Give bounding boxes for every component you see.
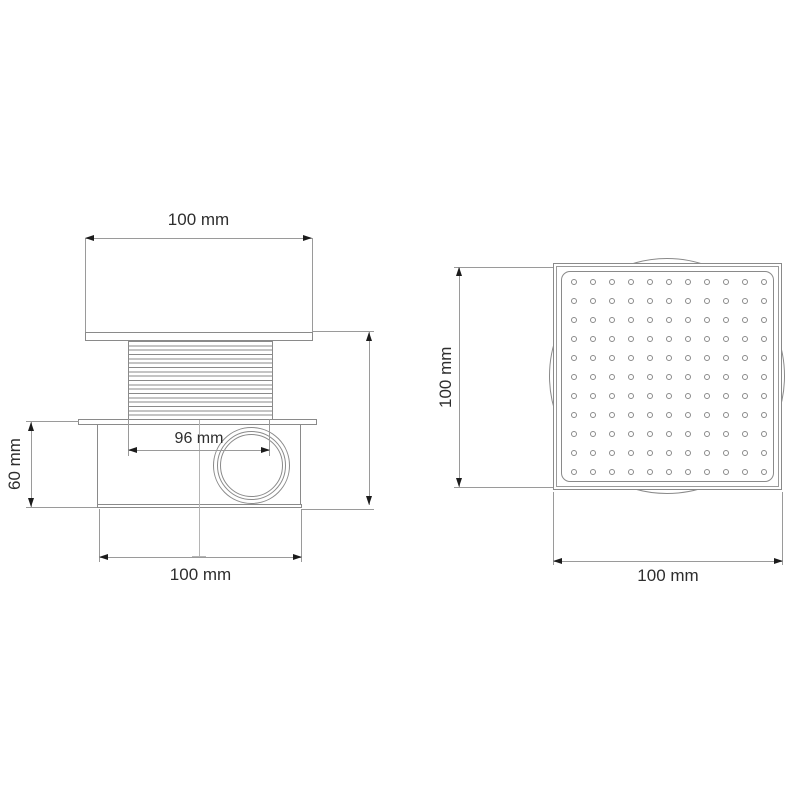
grate-hole — [628, 412, 634, 418]
grate-hole — [723, 279, 729, 285]
grate-hole — [609, 431, 615, 437]
grate-hole — [647, 336, 653, 342]
grate-hole — [647, 298, 653, 304]
grate-hole — [666, 431, 672, 437]
grate-hole — [628, 336, 634, 342]
grate-hole — [609, 412, 615, 418]
grate-hole — [723, 450, 729, 456]
grate-hole — [590, 298, 596, 304]
grate-hole — [723, 355, 729, 361]
grate-hole — [628, 450, 634, 456]
grate-hole — [723, 336, 729, 342]
grate-hole — [685, 317, 691, 323]
grate-hole — [609, 317, 615, 323]
grate-hole — [723, 298, 729, 304]
grate-hole — [666, 374, 672, 380]
grate-hole — [685, 279, 691, 285]
grate-hole — [704, 336, 710, 342]
dim-arrow-left-icon — [553, 558, 562, 564]
extension-line — [782, 492, 783, 565]
grate-hole — [571, 336, 577, 342]
grate-hole — [704, 279, 710, 285]
grate-hole — [742, 298, 748, 304]
grate-hole — [628, 393, 634, 399]
grate-hole — [647, 317, 653, 323]
grate-hole — [666, 298, 672, 304]
grate-hole — [723, 374, 729, 380]
grate-hole — [647, 469, 653, 475]
grate-hole — [571, 393, 577, 399]
dim-arrow-down-icon — [456, 478, 462, 487]
grate-hole — [571, 412, 577, 418]
grate-hole — [742, 450, 748, 456]
grate-hole — [761, 336, 767, 342]
grate-hole — [742, 279, 748, 285]
grate-hole — [742, 469, 748, 475]
grate-hole — [590, 469, 596, 475]
grate-hole — [761, 374, 767, 380]
grate-hole — [647, 412, 653, 418]
grate-hole — [590, 431, 596, 437]
grate-hole — [704, 374, 710, 380]
grate-hole — [685, 393, 691, 399]
grate-hole — [609, 355, 615, 361]
top-view-width-label: 100 mm — [553, 567, 783, 585]
grate-holes — [554, 264, 781, 489]
grate-hole — [590, 336, 596, 342]
grate-hole — [666, 336, 672, 342]
grate-hole — [761, 355, 767, 361]
dim-arrow-right-icon — [774, 558, 783, 564]
grate-hole — [685, 355, 691, 361]
grate-hole — [628, 279, 634, 285]
grate-hole — [609, 279, 615, 285]
extension-line — [454, 267, 553, 268]
grate-hole — [704, 450, 710, 456]
grate-hole — [571, 355, 577, 361]
grate-hole — [609, 374, 615, 380]
grate-hole — [723, 393, 729, 399]
grate-hole — [704, 431, 710, 437]
grate-hole — [647, 450, 653, 456]
grate-hole — [590, 393, 596, 399]
grate-hole — [628, 469, 634, 475]
grate-hole — [628, 317, 634, 323]
top-view-height-dim-line — [459, 267, 460, 487]
grate-hole — [666, 317, 672, 323]
grate-hole — [685, 469, 691, 475]
grate-hole — [666, 279, 672, 285]
grate-hole — [647, 374, 653, 380]
grate-hole — [628, 374, 634, 380]
grate-hole — [761, 469, 767, 475]
grate-hole — [685, 298, 691, 304]
grate-hole — [571, 279, 577, 285]
grate-hole — [666, 469, 672, 475]
grate-hole — [761, 317, 767, 323]
grate-hole — [685, 374, 691, 380]
grate-hole — [571, 317, 577, 323]
technical-drawing-canvas: 100 mm 96 mm — [0, 0, 800, 800]
grate-hole — [761, 279, 767, 285]
grate-hole — [761, 412, 767, 418]
grate-hole — [685, 431, 691, 437]
top-view-height-label: 100 mm — [436, 267, 456, 487]
grate-outer-frame — [553, 263, 782, 490]
grate-hole — [647, 393, 653, 399]
grate-hole — [647, 279, 653, 285]
grate-hole — [647, 431, 653, 437]
grate-hole — [590, 450, 596, 456]
grate-hole — [590, 279, 596, 285]
grate-hole — [609, 298, 615, 304]
grate-hole — [666, 412, 672, 418]
grate-hole — [628, 431, 634, 437]
grate-hole — [685, 450, 691, 456]
grate-hole — [666, 450, 672, 456]
grate-hole — [666, 393, 672, 399]
grate-hole — [609, 450, 615, 456]
grate-hole — [609, 393, 615, 399]
grate-hole — [647, 355, 653, 361]
grate-hole — [742, 393, 748, 399]
extension-line — [553, 492, 554, 565]
grate-hole — [704, 298, 710, 304]
grate-hole — [590, 355, 596, 361]
grate-hole — [628, 298, 634, 304]
grate-hole — [761, 393, 767, 399]
top-view: 100 mm 100 mm — [0, 0, 800, 800]
grate-hole — [704, 317, 710, 323]
grate-hole — [571, 431, 577, 437]
grate-hole — [590, 412, 596, 418]
grate-hole — [742, 317, 748, 323]
grate-hole — [723, 431, 729, 437]
grate-hole — [723, 412, 729, 418]
grate-hole — [571, 374, 577, 380]
grate-hole — [685, 412, 691, 418]
grate-hole — [742, 412, 748, 418]
grate-hole — [723, 469, 729, 475]
grate-hole — [742, 431, 748, 437]
grate-hole — [723, 317, 729, 323]
grate-hole — [742, 374, 748, 380]
grate-hole — [590, 374, 596, 380]
grate-hole — [628, 355, 634, 361]
grate-hole — [571, 298, 577, 304]
grate-hole — [761, 298, 767, 304]
grate-hole — [571, 469, 577, 475]
grate-hole — [761, 431, 767, 437]
extension-line — [454, 487, 553, 488]
grate-hole — [704, 412, 710, 418]
grate-hole — [742, 355, 748, 361]
grate-hole — [761, 450, 767, 456]
grate-hole — [704, 393, 710, 399]
grate-hole — [704, 469, 710, 475]
grate-hole — [742, 336, 748, 342]
top-view-width-dim-line — [553, 561, 783, 562]
grate-hole — [571, 450, 577, 456]
grate-hole — [609, 469, 615, 475]
dim-arrow-up-icon — [456, 267, 462, 276]
grate-hole — [704, 355, 710, 361]
grate-hole — [609, 336, 615, 342]
grate-hole — [590, 317, 596, 323]
grate-hole — [685, 336, 691, 342]
grate-hole — [666, 355, 672, 361]
